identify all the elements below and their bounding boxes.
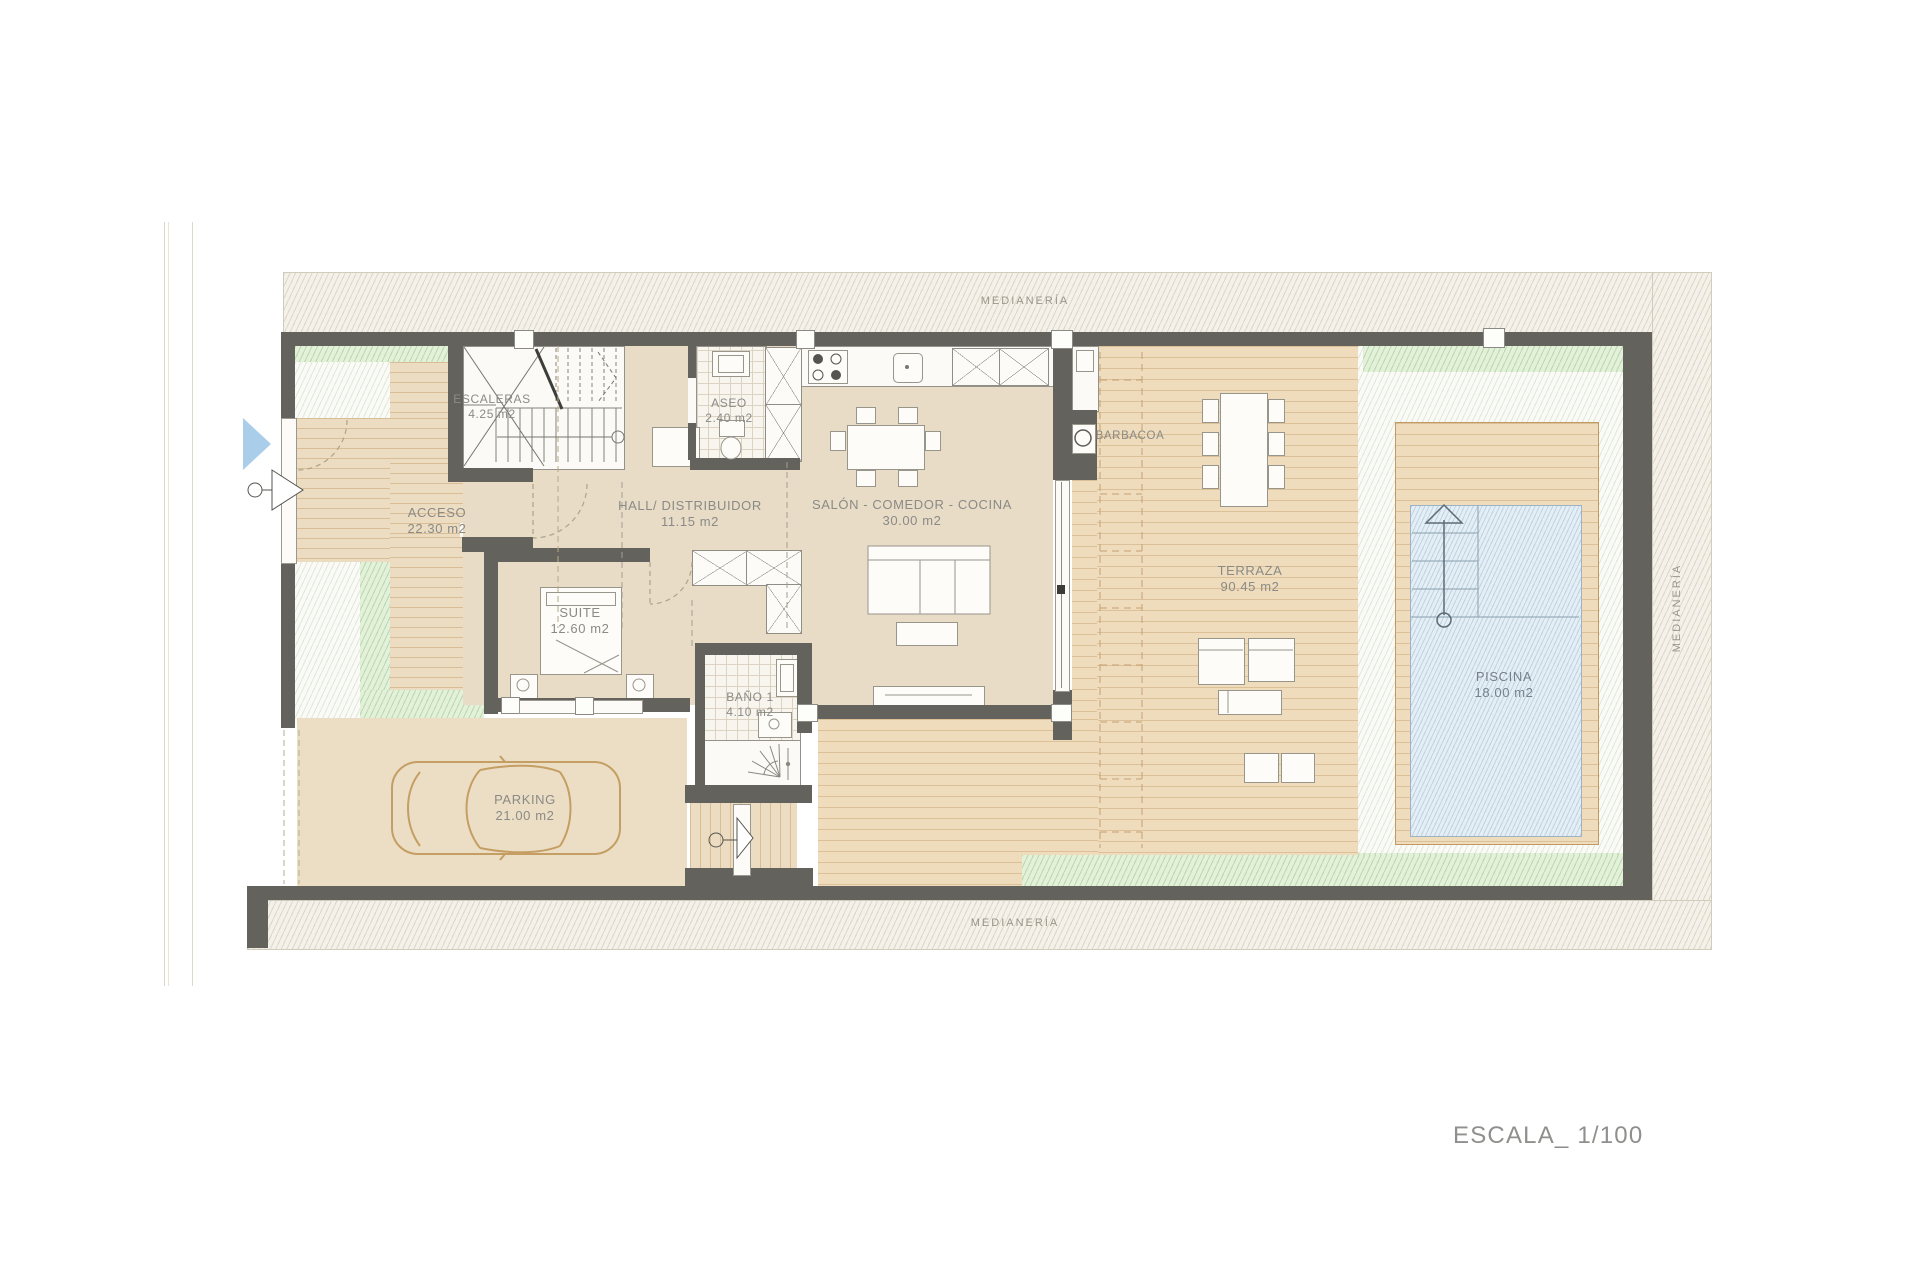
terrace-chair — [1268, 432, 1285, 456]
shower-floor — [703, 740, 801, 788]
room-label-salon: SALÓN - COMEDOR - COCINA 30.00 m2 — [812, 497, 1012, 529]
stove — [808, 350, 848, 384]
kitchen-cabinet-icon — [952, 348, 1001, 386]
wall-segment — [281, 562, 295, 728]
kitchen-appliance — [893, 353, 923, 383]
parking-slab — [297, 718, 687, 886]
dining-chair — [856, 470, 876, 487]
terraza-deck-strip — [1072, 480, 1097, 720]
room-label-terraza: TERRAZA 90.45 m2 — [1218, 563, 1283, 595]
scale-label: ESCALA_ 1/100 — [1453, 1122, 1643, 1150]
pillar — [797, 704, 818, 722]
pantry-cabinet-icon — [765, 404, 802, 462]
aseo-door-gap — [688, 378, 696, 423]
glass-door-handle — [1057, 585, 1065, 594]
dining-chair — [856, 407, 876, 424]
pillar — [501, 697, 520, 714]
wall-segment — [690, 458, 800, 470]
pantry-cabinet-icon — [765, 347, 802, 406]
porch-door-west — [733, 804, 751, 876]
wall-segment — [1623, 332, 1652, 900]
room-label-parking: PARKING 21.00 m2 — [494, 792, 556, 824]
page-fold-line — [168, 222, 169, 986]
terrace-chair — [1268, 399, 1285, 423]
terrace-chair — [1268, 465, 1285, 489]
garden-pale-left-lower — [290, 562, 360, 723]
pillar — [1483, 328, 1505, 348]
nightstand — [626, 674, 654, 699]
garden-green-top-left — [295, 346, 448, 362]
dining-chair — [898, 407, 918, 424]
nightstand — [510, 674, 538, 699]
dining-chair — [898, 470, 918, 487]
lounger — [1248, 638, 1295, 682]
pillar — [796, 330, 815, 349]
party-wall-label-bottom: MEDIANERÍA — [971, 917, 1059, 929]
wall-segment — [268, 886, 1652, 900]
garden-green-top-right — [1363, 346, 1623, 372]
pillar — [1051, 330, 1073, 349]
party-wall-label-top: MEDIANERÍA — [981, 295, 1069, 307]
wall-segment — [484, 548, 498, 714]
dining-chair — [830, 431, 846, 451]
dining-table — [847, 425, 925, 470]
coffee-table — [896, 622, 958, 646]
aseo-basin-bowl — [718, 355, 744, 373]
wall-segment — [247, 886, 268, 948]
pillar — [1051, 704, 1072, 722]
wall-segment — [817, 705, 1053, 719]
garden-green-bottom-strip2 — [1022, 855, 1648, 886]
suite-window-mullion — [575, 697, 594, 715]
terrace-chair — [1202, 432, 1219, 456]
terrace-table — [1220, 393, 1268, 507]
terrace-low-table — [1218, 690, 1282, 715]
room-label-piscina: PISCINA 18.00 m2 — [1474, 669, 1533, 701]
wall-segment — [695, 643, 812, 655]
barbacoa-sink — [1076, 350, 1094, 372]
floor-plan-canvas: MEDIANERÍA MEDIANERÍA MEDIANERÍA ESCALER… — [0, 0, 1920, 1280]
suite-bed-pillow — [546, 592, 616, 606]
wall-segment — [448, 468, 533, 482]
wall-segment — [484, 548, 650, 562]
bano-counter-bowl — [780, 664, 794, 692]
terrace-chair — [1202, 399, 1219, 423]
page-fold-line — [192, 222, 193, 986]
terrace-chair — [1202, 465, 1219, 489]
wall-segment — [281, 332, 295, 418]
room-label-bano: BAÑO 1 4.10 m2 — [726, 690, 774, 720]
terrace-stool — [1244, 753, 1279, 783]
wall-segment — [283, 332, 1652, 346]
room-label-suite: SUITE 12.60 m2 — [550, 605, 609, 637]
wardrobe-icon — [746, 550, 802, 586]
tv-sideboard — [873, 686, 985, 706]
wall-segment — [695, 643, 705, 803]
terrace-stool — [1281, 753, 1315, 783]
room-label-barbacoa: BARBACOA — [1096, 428, 1165, 444]
dining-chair — [925, 431, 941, 451]
party-wall-label-right: MEDIANERÍA — [1671, 564, 1683, 652]
room-label-hall: HALL/ DISTRIBUIDOR 11.15 m2 — [618, 498, 762, 530]
lounger — [1198, 638, 1245, 685]
entry-arrow-icon — [243, 418, 271, 470]
wall-segment — [685, 785, 812, 803]
room-label-escaleras: ESCALERAS 4.25 m2 — [453, 392, 530, 422]
room-label-aseo: ASEO 2.40 m2 — [705, 396, 753, 426]
wardrobe-icon — [766, 584, 802, 634]
kitchen-cabinet-icon — [999, 348, 1049, 386]
entry-gate-strip — [281, 418, 297, 564]
room-label-acceso: ACCESO 22.30 m2 — [407, 505, 466, 537]
page-fold-line — [164, 222, 165, 986]
pillar — [514, 330, 534, 349]
barbacoa-unit-front — [1072, 424, 1096, 454]
wardrobe-icon — [692, 550, 748, 586]
